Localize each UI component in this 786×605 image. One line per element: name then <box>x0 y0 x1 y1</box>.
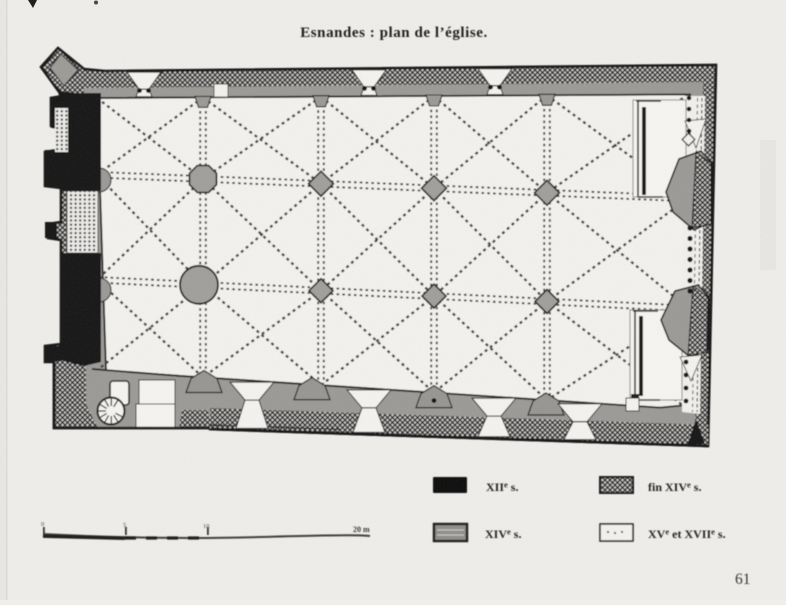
svg-text:XIIe s.: XIIe s. <box>486 480 518 495</box>
svg-text:20 m: 20 m <box>353 525 370 534</box>
svg-text:XIVe s.: XIVe s. <box>485 527 521 542</box>
svg-text:XVe et XVIIe s.: XVe et XVIIe s. <box>648 527 726 542</box>
svg-text:fin XIVe s.: fin XIVe s. <box>648 480 701 495</box>
svg-text:10: 10 <box>203 523 210 530</box>
svg-text:5: 5 <box>123 522 126 529</box>
svg-text:0: 0 <box>41 521 44 528</box>
svg-text:Esnandes : plan de l’église.: Esnandes : plan de l’église. <box>300 25 488 41</box>
svg-text:61: 61 <box>735 571 751 588</box>
